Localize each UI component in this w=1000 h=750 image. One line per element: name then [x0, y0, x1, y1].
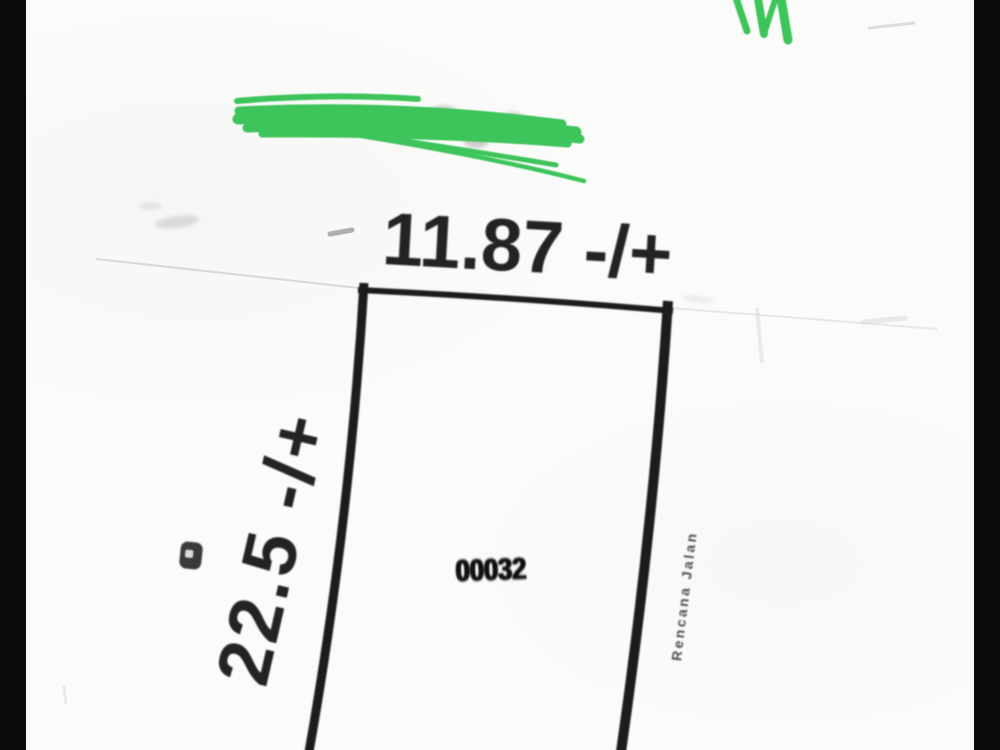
plot-outline	[309, 283, 673, 750]
plot-number: 00032	[455, 551, 527, 589]
small-mark-hole	[185, 549, 194, 558]
scanned-plot-sketch: 11.87 -/+ 22.5 -/+ 00032 Rencana Jalan	[0, 0, 1000, 750]
green-scribble	[237, 96, 584, 181]
green-corner-marks	[735, 0, 788, 40]
sketch-strokes-layer	[0, 0, 1000, 750]
top-dimension-label: 11.87 -/+	[380, 196, 674, 297]
small-mark-glyph	[179, 541, 204, 570]
